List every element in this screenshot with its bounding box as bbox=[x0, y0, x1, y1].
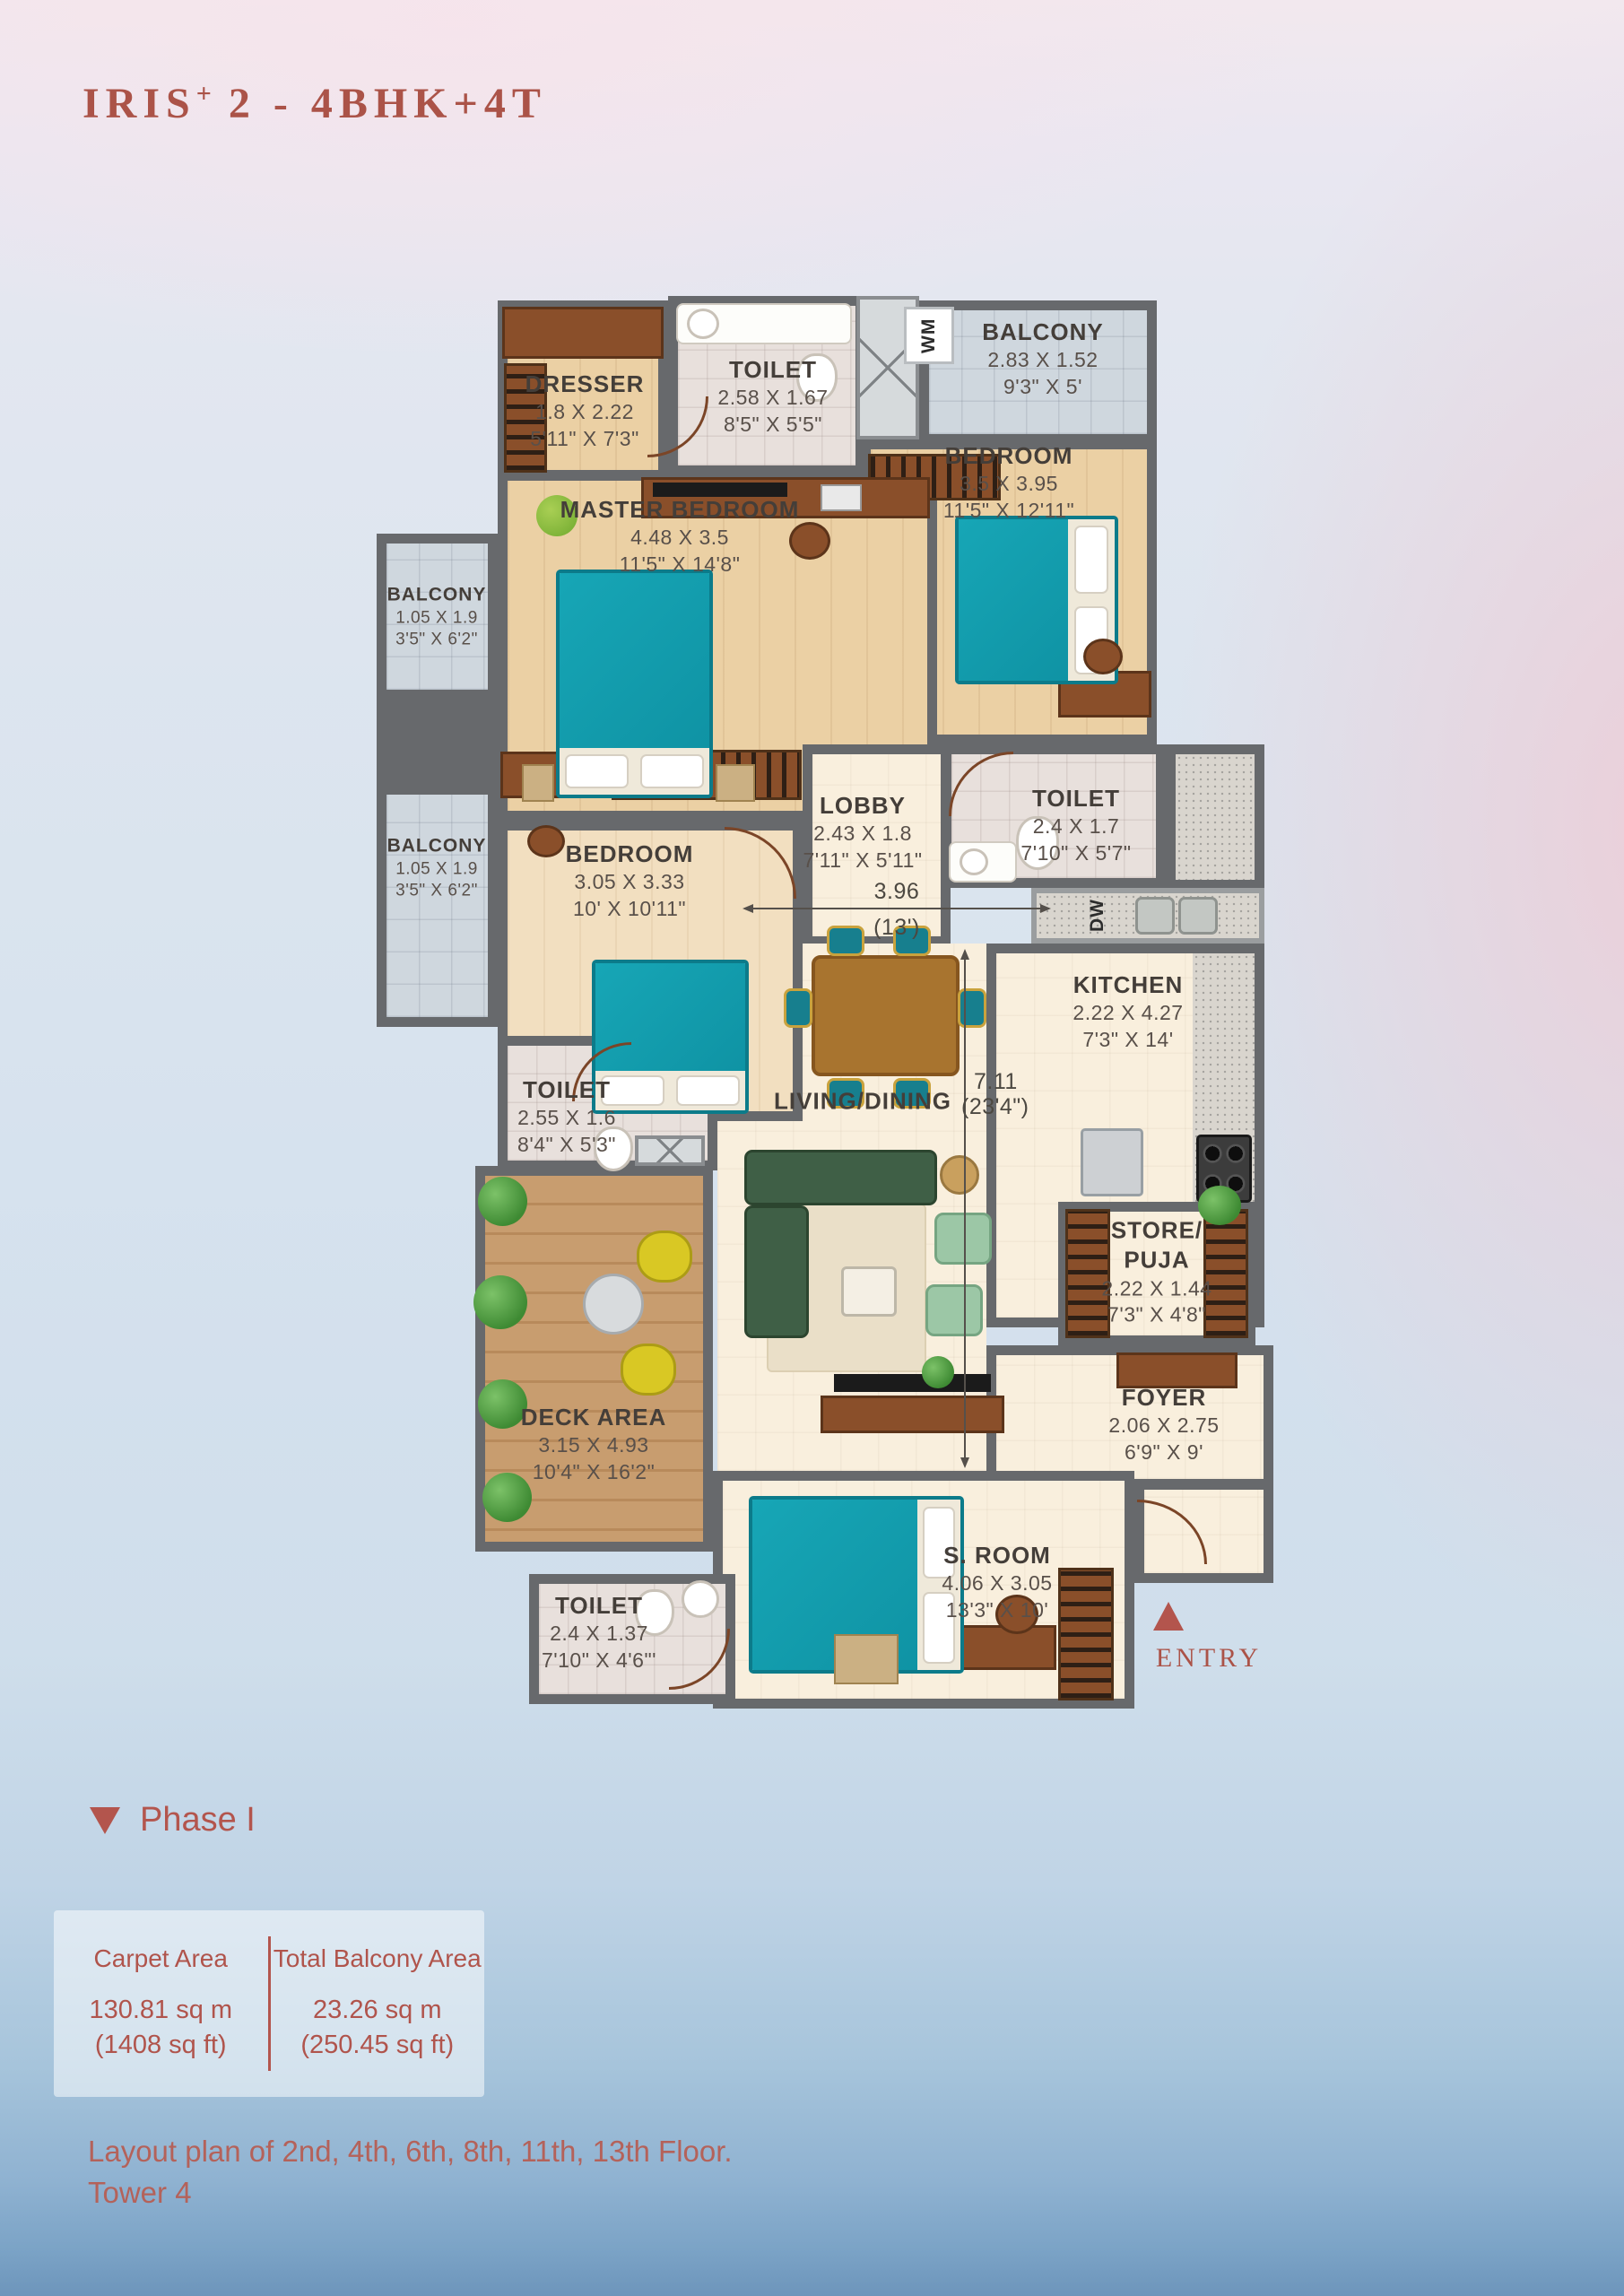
room-name: LOBBY bbox=[803, 791, 922, 821]
carpet-area-column: Carpet Area 130.81 sq m (1408 sq ft) bbox=[54, 1944, 268, 2063]
room-label-toilet-left: TOILET 2.55 X 1.6 8'4" X 5'3" bbox=[517, 1075, 616, 1158]
sofa-chaise bbox=[744, 1205, 809, 1338]
room-dim-m: 3.05 X 3.33 bbox=[566, 869, 694, 895]
room-name: DECK AREA bbox=[521, 1403, 667, 1432]
room-dim-ft: 7'3" X 14' bbox=[1073, 1027, 1183, 1053]
room-name: PUJA bbox=[1101, 1246, 1211, 1275]
room-dim-ft: 5'11" X 7'3" bbox=[525, 426, 645, 452]
room-dim-m: 1.05 X 1.9 bbox=[387, 858, 487, 880]
washing-machine: WM bbox=[904, 307, 954, 364]
room-dim-m: 1.8 X 2.22 bbox=[525, 399, 645, 425]
room-dim-ft: 6'9" X 9' bbox=[1108, 1439, 1219, 1465]
room-label-toilet-bottom: TOILET 2.4 X 1.37 7'10" X 4'6"' bbox=[542, 1591, 656, 1674]
master-toilet-sink bbox=[687, 309, 719, 339]
armchair bbox=[934, 1213, 992, 1265]
room-name: BALCONY bbox=[387, 834, 487, 858]
deck-table bbox=[583, 1274, 644, 1335]
room-name: DRESSER bbox=[525, 370, 645, 399]
room-dim-ft: 7'10" X 5'7" bbox=[1020, 840, 1131, 866]
room-label-s-room: S. ROOM 4.06 X 3.05 13'3" X 10' bbox=[942, 1541, 1052, 1623]
room-dim-m: 2.4 X 1.37 bbox=[542, 1621, 656, 1647]
room-label-balcony-top: BALCONY 2.83 X 1.52 9'3" X 5' bbox=[982, 317, 1104, 400]
room-dim-m: 2.83 X 1.52 bbox=[982, 347, 1104, 373]
room-label-living-dining: LIVING/DINING bbox=[774, 1086, 951, 1116]
master-nightstand-left bbox=[522, 764, 554, 802]
room-dim-ft: 9'3" X 5' bbox=[982, 374, 1104, 400]
deck-chair bbox=[621, 1344, 676, 1396]
room-dim-ft: 8'4" X 5'3" bbox=[517, 1132, 616, 1158]
room-name: TOILET bbox=[717, 355, 828, 385]
dishwasher: DW bbox=[1085, 893, 1110, 938]
room-dim-m: 4.48 X 3.5 bbox=[560, 525, 800, 551]
armchair bbox=[925, 1284, 983, 1336]
room-label-toilet-mid: TOILET 2.4 X 1.7 7'10" X 5'7" bbox=[1020, 784, 1131, 866]
balcony-area-column: Total Balcony Area 23.26 sq m (250.45 sq… bbox=[271, 1944, 485, 2063]
area-summary-panel: Carpet Area 130.81 sq m (1408 sq ft) Tot… bbox=[54, 1910, 484, 2097]
room-dim-ft: 7'3" X 4'8" bbox=[1101, 1301, 1211, 1327]
room-dim-m: 2.22 X 1.44 bbox=[1101, 1275, 1211, 1301]
room-name: MASTER BEDROOM bbox=[560, 495, 800, 525]
width-dimension-m: 3.96 bbox=[856, 879, 937, 905]
room-dim-ft: 10' X 10'11" bbox=[566, 896, 694, 922]
plant bbox=[922, 1356, 954, 1388]
bed-pillows bbox=[560, 748, 709, 795]
room-label-kitchen: KITCHEN 2.22 X 4.27 7'3" X 14' bbox=[1073, 970, 1183, 1053]
phase-marker: Phase I bbox=[90, 1801, 256, 1839]
room-dim-ft: 7'11" X 5'11" bbox=[803, 848, 922, 874]
room-name: BEDROOM bbox=[566, 839, 694, 869]
dining-chair bbox=[784, 988, 812, 1028]
room-dim-ft: 13'3" X 10' bbox=[942, 1597, 1052, 1623]
width-dimension-ft: (13') bbox=[856, 915, 937, 941]
side-table bbox=[940, 1155, 979, 1195]
floor-plan: WM DW bbox=[368, 287, 1291, 1722]
room-label-master-bedroom: MASTER BEDROOM 4.48 X 3.5 11'5" X 14'8" bbox=[560, 495, 800, 578]
washing-machine-label: WM bbox=[918, 317, 940, 352]
room-label-dresser: DRESSER 1.8 X 2.22 5'11" X 7'3" bbox=[525, 370, 645, 452]
toilet-mid-sink bbox=[960, 848, 988, 875]
room-label-store-puja: STORE/ PUJA 2.22 X 1.44 7'3" X 4'8" bbox=[1101, 1215, 1211, 1327]
room-name: S. ROOM bbox=[942, 1541, 1052, 1570]
room-label-master-toilet: TOILET 2.58 X 1.67 8'5" X 5'5" bbox=[717, 355, 828, 438]
pillow bbox=[640, 754, 704, 788]
deck-chair bbox=[637, 1231, 692, 1283]
pillow bbox=[565, 754, 629, 788]
height-dimension-ft: (23'4") bbox=[961, 1094, 1029, 1120]
room-name: FOYER bbox=[1108, 1383, 1219, 1413]
master-bed bbox=[556, 570, 713, 798]
deck-plant bbox=[473, 1275, 527, 1329]
bed-duvet bbox=[560, 573, 709, 748]
balcony-area-label: Total Balcony Area bbox=[271, 1944, 485, 1973]
room-dim-m: 3.5 X 3.95 bbox=[943, 471, 1074, 497]
room-label-bedroom-top: BEDROOM 3.5 X 3.95 11'5" X 12'11" bbox=[943, 441, 1074, 524]
room-label-deck-area: DECK AREA 3.15 X 4.93 10'4" X 16'2" bbox=[521, 1403, 667, 1485]
toilet-left-shaft bbox=[635, 1135, 705, 1166]
s-room-nightstand bbox=[834, 1634, 899, 1684]
height-dimension-line bbox=[964, 951, 966, 1466]
pillow bbox=[1074, 526, 1108, 594]
room-dim-m: 2.43 X 1.8 bbox=[803, 821, 922, 847]
title-rest: 2 - 4BHK+4T bbox=[212, 80, 547, 127]
living-tv bbox=[834, 1374, 991, 1392]
height-dimension-m: 7.11 bbox=[974, 1069, 1018, 1095]
carpet-area-sqm: 130.81 sq m bbox=[54, 1993, 268, 2028]
layout-note-line1: Layout plan of 2nd, 4th, 6th, 8th, 11th,… bbox=[88, 2135, 733, 2169]
room-dim-m: 2.58 X 1.67 bbox=[717, 385, 828, 411]
bed-duvet bbox=[959, 519, 1068, 681]
room-dim-ft: 10'4" X 16'2" bbox=[521, 1459, 667, 1485]
carpet-area-label: Carpet Area bbox=[54, 1944, 268, 1973]
width-dimension-line bbox=[744, 908, 1049, 909]
coffee-table bbox=[841, 1266, 897, 1317]
room-label-bedroom-mid: BEDROOM 3.05 X 3.33 10' X 10'11" bbox=[566, 839, 694, 922]
room-name: TOILET bbox=[1020, 784, 1131, 813]
pillow bbox=[676, 1075, 740, 1106]
phase-label: Phase I bbox=[140, 1801, 256, 1839]
room-name: KITCHEN bbox=[1073, 970, 1183, 1000]
title-sup: + bbox=[196, 79, 212, 109]
dresser-unit bbox=[502, 307, 664, 359]
entry-label: ENTRY bbox=[1156, 1643, 1262, 1674]
master-nightstand-right bbox=[716, 764, 755, 802]
dining-table bbox=[812, 955, 960, 1076]
entry-arrow-icon bbox=[1153, 1602, 1184, 1631]
bedroom-mid-chair bbox=[527, 825, 565, 857]
toilet-bottom-sink bbox=[682, 1580, 719, 1618]
deck-plant bbox=[478, 1177, 527, 1226]
room-dim-m: 4.06 X 3.05 bbox=[942, 1570, 1052, 1596]
room-name: TOILET bbox=[542, 1591, 656, 1621]
sofa bbox=[744, 1150, 937, 1205]
room-name: LIVING/DINING bbox=[774, 1086, 951, 1116]
bedroom-top-chair bbox=[1083, 639, 1123, 674]
room-name: BALCONY bbox=[387, 583, 487, 607]
room-dim-ft: 11'5" X 12'11" bbox=[943, 498, 1074, 524]
room-dim-ft: 11'5" X 14'8" bbox=[560, 552, 800, 578]
room-dim-ft: 7'10" X 4'6"' bbox=[542, 1648, 656, 1674]
room-name: STORE/ bbox=[1101, 1215, 1211, 1245]
kitchen-sink-2 bbox=[1178, 897, 1218, 935]
wall-block bbox=[377, 700, 498, 785]
room-dim-m: 1.05 X 1.9 bbox=[387, 607, 487, 629]
title-main: IRIS bbox=[83, 80, 196, 127]
balcony-area-sqft: (250.45 sq ft) bbox=[271, 2028, 485, 2063]
laptop bbox=[821, 484, 862, 511]
room-label-lobby: LOBBY 2.43 X 1.8 7'11" X 5'11" bbox=[803, 791, 922, 874]
balcony-left-lower-room bbox=[377, 785, 498, 1027]
dining-chair bbox=[958, 988, 986, 1028]
fridge bbox=[1081, 1128, 1143, 1196]
s-room-wardrobe bbox=[1058, 1568, 1114, 1700]
room-dim-m: 2.06 X 2.75 bbox=[1108, 1413, 1219, 1439]
room-dim-m: 2.22 X 4.27 bbox=[1073, 1000, 1183, 1026]
room-name: BEDROOM bbox=[943, 441, 1074, 471]
tv-console bbox=[821, 1396, 1004, 1433]
utility-area bbox=[1166, 744, 1264, 890]
dishwasher-label: DW bbox=[1087, 900, 1108, 933]
carpet-area-sqft: (1408 sq ft) bbox=[54, 2028, 268, 2063]
room-dim-m: 2.55 X 1.6 bbox=[517, 1105, 616, 1131]
room-name: BALCONY bbox=[982, 317, 1104, 347]
room-dim-ft: 8'5" X 5'5" bbox=[717, 412, 828, 438]
room-dim-ft: 3'5" X 6'2" bbox=[387, 629, 487, 650]
layout-note-line2: Tower 4 bbox=[88, 2176, 192, 2210]
room-label-balcony-left-upper: BALCONY 1.05 X 1.9 3'5" X 6'2" bbox=[387, 583, 487, 651]
room-name: TOILET bbox=[517, 1075, 616, 1105]
kitchen-sink-1 bbox=[1135, 897, 1175, 935]
room-dim-m: 3.15 X 4.93 bbox=[521, 1432, 667, 1458]
page-title: IRIS+ 2 - 4BHK+4T bbox=[83, 79, 547, 128]
room-label-foyer: FOYER 2.06 X 2.75 6'9" X 9' bbox=[1108, 1383, 1219, 1465]
room-dim-m: 2.4 X 1.7 bbox=[1020, 813, 1131, 839]
phase-triangle-icon bbox=[90, 1807, 120, 1834]
balcony-area-sqm: 23.26 sq m bbox=[271, 1993, 485, 2028]
room-dim-ft: 3'5" X 6'2" bbox=[387, 880, 487, 901]
room-label-balcony-left-lower: BALCONY 1.05 X 1.9 3'5" X 6'2" bbox=[387, 834, 487, 902]
